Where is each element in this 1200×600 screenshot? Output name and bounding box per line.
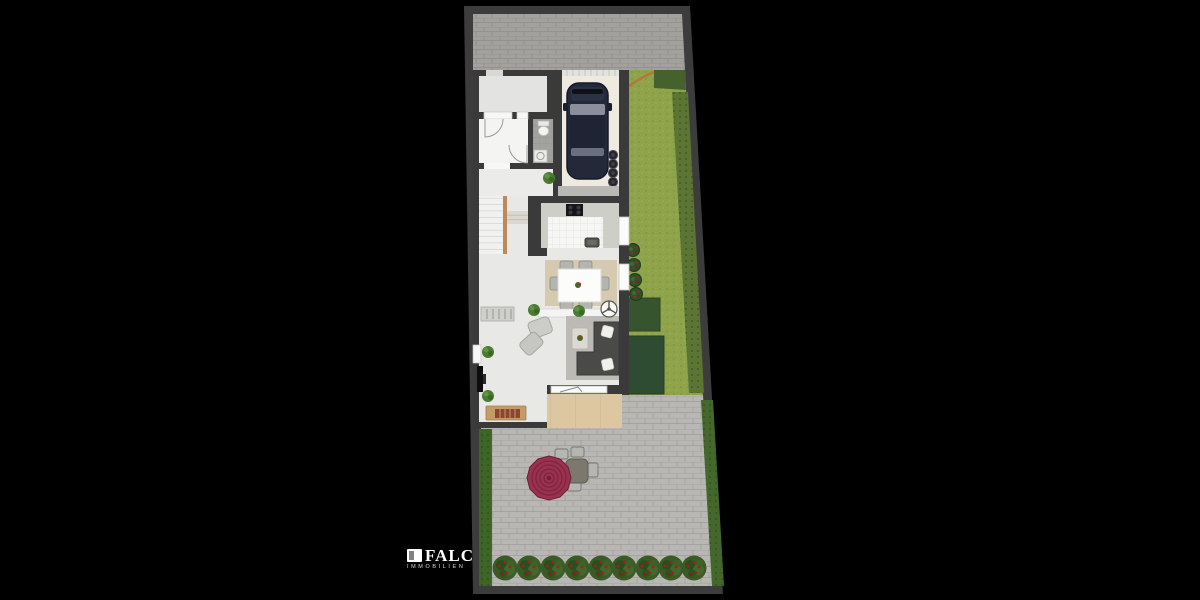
sideboard <box>481 307 514 321</box>
falc-brand-text: FALC <box>425 549 474 562</box>
ceiling-fan <box>601 301 617 317</box>
hedge-top <box>654 70 686 90</box>
door-opening <box>484 163 510 169</box>
sofa-pillow <box>601 358 614 371</box>
stair-rail <box>503 196 507 254</box>
front-door <box>486 70 503 76</box>
window <box>619 217 629 245</box>
falc-logo: FALC IMMOBILIEN <box>407 549 474 570</box>
floor-plan-image: FALC IMMOBILIEN <box>0 0 1200 600</box>
sliding-door <box>551 386 607 393</box>
toilet <box>538 121 549 136</box>
wooden-bench <box>486 406 526 420</box>
flowering-bush-row <box>493 556 707 581</box>
sink <box>585 238 599 247</box>
bathroom <box>533 119 553 163</box>
terrace <box>547 394 622 428</box>
kitchen <box>528 196 619 256</box>
hedge-block <box>625 298 660 331</box>
table-centerpiece <box>575 282 581 288</box>
washing-machine <box>534 150 547 162</box>
floor-plan-scene <box>0 0 1200 600</box>
car-roof <box>570 115 605 148</box>
car-windshield <box>570 104 605 115</box>
window <box>619 264 629 290</box>
console-table <box>538 309 603 317</box>
driveway <box>473 14 685 70</box>
room-storage <box>479 70 547 119</box>
falc-subline: IMMOBILIEN <box>407 564 474 570</box>
sofa-pillow <box>601 325 614 338</box>
interior-door-opening <box>517 112 528 119</box>
falc-logo-icon <box>407 549 422 562</box>
hedge-left <box>479 429 492 586</box>
garage-threshold <box>558 186 619 196</box>
window <box>473 345 481 363</box>
patio-chair <box>571 447 584 457</box>
hallway-floor <box>479 169 553 196</box>
hedge-block <box>625 336 664 394</box>
coffee-table <box>572 328 588 349</box>
car-mirror <box>607 103 612 111</box>
patio-chair <box>555 449 568 459</box>
stove <box>566 204 583 216</box>
interior-window <box>484 112 512 119</box>
car <box>563 83 612 179</box>
room-entry <box>479 119 528 169</box>
garage <box>558 70 619 196</box>
garage-door <box>562 70 619 76</box>
patio-chair <box>588 463 598 477</box>
car-mirror <box>563 103 568 111</box>
